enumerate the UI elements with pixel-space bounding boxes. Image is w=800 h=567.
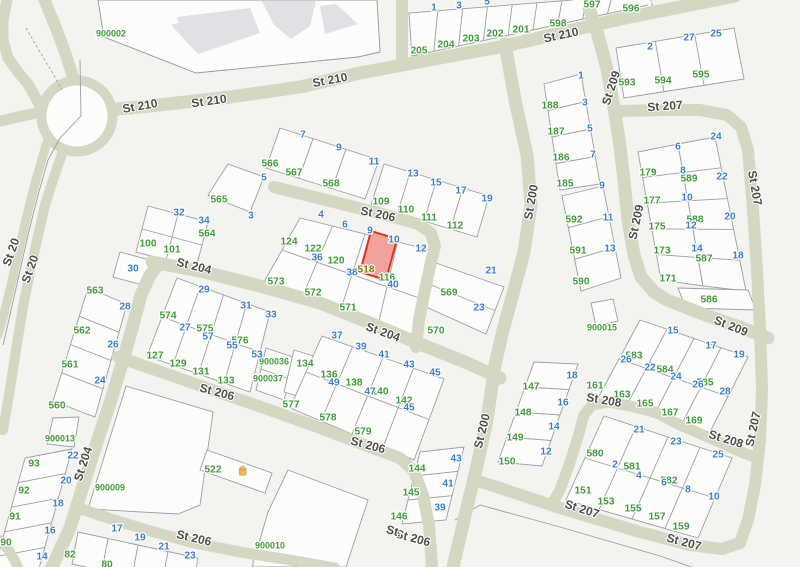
svg-text:574: 574: [160, 311, 177, 322]
svg-text:41: 41: [378, 350, 390, 361]
svg-text:36: 36: [311, 253, 323, 264]
svg-text:16: 16: [557, 398, 569, 409]
svg-text:9: 9: [599, 181, 605, 192]
svg-text:38: 38: [346, 268, 358, 279]
svg-text:138: 138: [346, 378, 363, 389]
svg-text:577: 577: [283, 400, 300, 411]
svg-text:25: 25: [712, 450, 724, 461]
svg-text:110: 110: [398, 205, 415, 216]
svg-text:3: 3: [456, 1, 462, 12]
svg-text:518: 518: [358, 265, 375, 276]
svg-text:171: 171: [660, 274, 677, 285]
svg-text:590: 590: [573, 277, 590, 288]
svg-text:568: 568: [323, 179, 340, 190]
svg-text:34: 34: [198, 216, 210, 227]
svg-text:43: 43: [450, 454, 462, 465]
svg-text:82: 82: [64, 550, 76, 561]
svg-text:21: 21: [485, 266, 497, 277]
svg-text:567: 567: [286, 168, 303, 179]
svg-text:12: 12: [415, 244, 427, 255]
svg-text:129: 129: [170, 359, 187, 370]
svg-text:14: 14: [691, 244, 703, 255]
svg-text:3: 3: [248, 211, 254, 222]
svg-text:5: 5: [261, 173, 267, 184]
svg-text:151: 151: [575, 486, 592, 497]
svg-text:900013: 900013: [45, 434, 75, 444]
svg-text:23: 23: [184, 551, 196, 562]
svg-text:1: 1: [578, 71, 584, 82]
svg-text:205: 205: [411, 46, 428, 57]
svg-text:10: 10: [388, 235, 400, 246]
svg-text:19: 19: [481, 194, 493, 205]
svg-text:188: 188: [542, 101, 559, 112]
svg-text:149: 149: [507, 433, 524, 444]
svg-text:157: 157: [649, 512, 666, 523]
svg-text:204: 204: [438, 40, 455, 51]
svg-text:49: 49: [328, 378, 340, 389]
svg-text:24: 24: [670, 372, 682, 383]
svg-text:24: 24: [94, 376, 106, 387]
svg-text:8: 8: [685, 485, 691, 496]
svg-text:202: 202: [487, 29, 504, 40]
svg-text:146: 146: [391, 512, 408, 523]
svg-text:45: 45: [429, 368, 441, 379]
svg-text:147: 147: [523, 382, 540, 393]
svg-text:31: 31: [240, 301, 252, 312]
svg-text:13: 13: [604, 244, 616, 255]
svg-text:185: 185: [557, 179, 574, 190]
svg-text:4: 4: [636, 471, 642, 482]
svg-text:53: 53: [251, 350, 263, 361]
svg-text:28: 28: [719, 387, 731, 398]
svg-text:3: 3: [582, 98, 588, 109]
svg-text:145: 145: [403, 488, 420, 499]
svg-text:9: 9: [367, 226, 373, 237]
svg-text:7: 7: [590, 150, 596, 161]
svg-text:570: 570: [428, 326, 445, 337]
svg-text:561: 561: [62, 360, 79, 371]
svg-text:20: 20: [724, 212, 736, 223]
svg-text:93: 93: [28, 459, 40, 470]
svg-text:594: 594: [655, 76, 672, 87]
svg-text:27: 27: [683, 33, 695, 44]
svg-text:900036: 900036: [259, 357, 289, 367]
svg-text:186: 186: [553, 153, 570, 164]
svg-text:100: 100: [140, 239, 157, 250]
svg-text:55: 55: [226, 341, 238, 352]
svg-text:18: 18: [52, 499, 64, 510]
svg-text:17: 17: [705, 341, 717, 352]
svg-text:27: 27: [179, 323, 191, 334]
svg-text:26: 26: [620, 355, 632, 366]
svg-text:11: 11: [603, 213, 614, 224]
svg-text:148: 148: [515, 408, 532, 419]
svg-text:57: 57: [202, 332, 214, 343]
svg-text:40: 40: [387, 280, 399, 291]
svg-text:8: 8: [680, 166, 686, 177]
svg-text:572: 572: [305, 288, 322, 299]
svg-text:11: 11: [369, 157, 380, 168]
svg-text:5: 5: [587, 124, 593, 135]
svg-text:111: 111: [421, 213, 437, 224]
svg-text:25: 25: [710, 29, 722, 40]
svg-text:159: 159: [673, 522, 690, 533]
svg-text:153: 153: [598, 497, 615, 508]
svg-text:37: 37: [331, 331, 343, 342]
svg-text:22: 22: [716, 172, 728, 183]
svg-text:91: 91: [9, 512, 21, 523]
svg-text:28: 28: [119, 302, 131, 313]
svg-text:597: 597: [584, 0, 601, 11]
svg-text:127: 127: [147, 351, 164, 362]
svg-text:563: 563: [87, 286, 104, 297]
svg-text:560: 560: [49, 401, 66, 412]
svg-text:900009: 900009: [95, 483, 125, 493]
svg-text:595: 595: [693, 70, 710, 81]
svg-text:586: 586: [701, 295, 718, 306]
svg-text:26: 26: [107, 340, 119, 351]
svg-text:573: 573: [268, 277, 285, 288]
svg-text:4: 4: [318, 210, 324, 221]
svg-text:1: 1: [431, 3, 437, 14]
svg-text:30: 30: [127, 264, 139, 275]
svg-text:591: 591: [570, 246, 587, 257]
svg-text:45: 45: [403, 403, 415, 414]
svg-text:St 207: St 207: [647, 98, 684, 114]
svg-text:17: 17: [455, 186, 467, 197]
svg-text:165: 165: [637, 399, 654, 410]
svg-text:39: 39: [355, 342, 367, 353]
svg-text:43: 43: [403, 360, 415, 371]
svg-text:41: 41: [442, 479, 454, 490]
svg-text:17: 17: [111, 524, 123, 535]
svg-text:571: 571: [340, 303, 357, 314]
svg-text:522: 522: [205, 465, 222, 476]
svg-text:80: 80: [101, 560, 113, 567]
svg-text:5: 5: [484, 0, 490, 8]
svg-text:12: 12: [540, 447, 552, 458]
svg-text:175: 175: [649, 222, 666, 233]
svg-text:90: 90: [0, 538, 12, 549]
svg-text:566: 566: [262, 159, 279, 170]
svg-text:187: 187: [548, 127, 565, 138]
svg-text:19: 19: [733, 350, 745, 361]
svg-text:169: 169: [686, 416, 703, 427]
svg-text:177: 177: [644, 196, 661, 207]
svg-text:92: 92: [18, 486, 30, 497]
svg-text:26: 26: [692, 380, 704, 391]
svg-text:21: 21: [158, 542, 170, 553]
svg-text:16: 16: [44, 526, 56, 537]
svg-text:900010: 900010: [255, 541, 285, 551]
svg-text:7: 7: [300, 130, 306, 141]
svg-text:596: 596: [623, 4, 640, 15]
svg-text:18: 18: [566, 371, 578, 382]
svg-text:900037: 900037: [253, 374, 283, 384]
svg-text:2: 2: [612, 460, 618, 471]
svg-text:39: 39: [434, 503, 446, 514]
svg-text:14: 14: [548, 422, 560, 433]
svg-text:14: 14: [36, 552, 48, 563]
svg-text:150: 150: [499, 457, 516, 468]
svg-text:580: 580: [587, 449, 604, 460]
svg-text:900015: 900015: [587, 323, 617, 333]
svg-text:587: 587: [696, 254, 713, 265]
svg-text:22: 22: [644, 363, 656, 374]
svg-text:15: 15: [430, 178, 442, 189]
svg-text:15: 15: [667, 326, 679, 337]
svg-text:134: 134: [297, 359, 314, 370]
svg-text:23: 23: [473, 303, 485, 314]
svg-text:6: 6: [342, 220, 348, 231]
svg-text:29: 29: [198, 285, 210, 296]
svg-text:201: 201: [513, 25, 530, 36]
svg-text:179: 179: [640, 168, 657, 179]
svg-text:13: 13: [407, 169, 419, 180]
svg-text:12: 12: [685, 221, 697, 232]
svg-text:569: 569: [441, 288, 458, 299]
svg-text:2: 2: [647, 42, 653, 53]
svg-text:124: 124: [281, 237, 298, 248]
svg-text:19: 19: [134, 533, 146, 544]
svg-text:9: 9: [336, 143, 342, 154]
svg-text:564: 564: [199, 229, 216, 240]
svg-text:112: 112: [447, 221, 464, 232]
svg-text:32: 32: [173, 208, 185, 219]
svg-text:131: 131: [193, 367, 210, 378]
svg-text:144: 144: [409, 464, 426, 475]
svg-text:18: 18: [732, 251, 744, 262]
svg-text:6: 6: [661, 478, 667, 489]
svg-text:24: 24: [710, 132, 722, 143]
svg-text:203: 203: [463, 34, 480, 45]
svg-text:155: 155: [625, 504, 642, 515]
svg-text:565: 565: [211, 195, 228, 206]
svg-text:120: 120: [328, 256, 345, 267]
svg-text:23: 23: [670, 437, 682, 448]
svg-text:173: 173: [654, 246, 671, 257]
svg-text:20: 20: [60, 476, 72, 487]
svg-text:47: 47: [364, 387, 376, 398]
svg-text:33: 33: [265, 310, 277, 321]
svg-text:167: 167: [662, 408, 679, 419]
svg-text:10: 10: [708, 492, 720, 503]
svg-text:6: 6: [675, 142, 681, 153]
svg-text:900002: 900002: [96, 29, 126, 39]
svg-text:21: 21: [633, 425, 645, 436]
svg-text:562: 562: [74, 326, 91, 337]
svg-text:578: 578: [320, 413, 337, 424]
svg-text:10: 10: [681, 193, 693, 204]
svg-text:592: 592: [566, 215, 583, 226]
